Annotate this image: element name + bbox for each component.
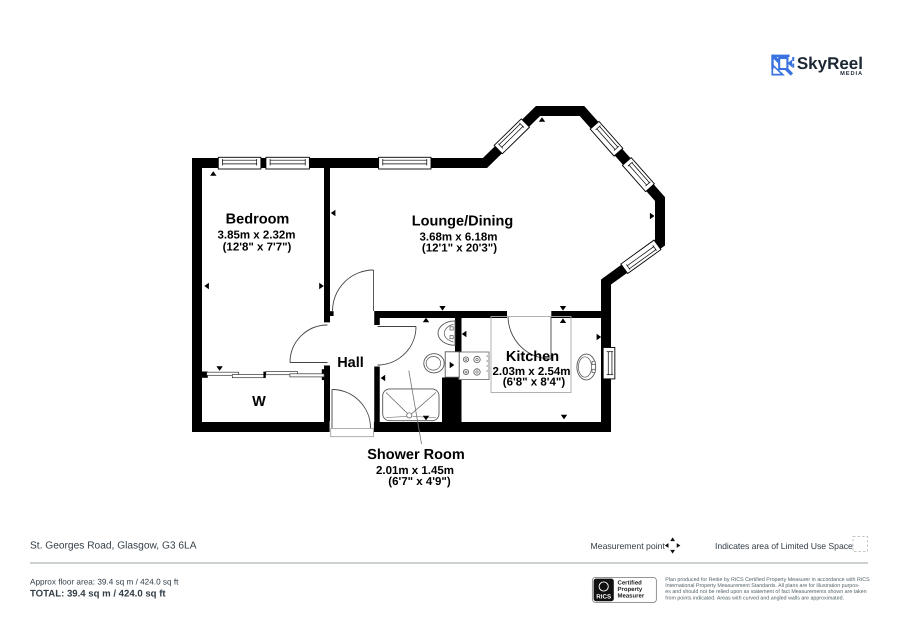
svg-text:(12'1" x 20'3"): (12'1" x 20'3") <box>422 242 497 254</box>
svg-text:Property: Property <box>618 586 643 593</box>
svg-text:MEDIA: MEDIA <box>840 71 863 77</box>
svg-text:Approx floor area: 39.4 sq m /: Approx floor area: 39.4 sq m / 424.0 sq … <box>30 578 179 587</box>
svg-text:Plan produced for Rettie by RI: Plan produced for Rettie by RICS Certifi… <box>665 577 870 583</box>
svg-text:es and should not be relied up: es and should not be relied upon as stat… <box>665 589 866 595</box>
svg-text:RICS: RICS <box>596 594 611 601</box>
svg-text:Measurement point: Measurement point <box>591 541 666 551</box>
svg-text:from points indicated. Areas w: from points indicated. Areas with curved… <box>665 595 844 601</box>
svg-text:3.85m x 2.32m: 3.85m x 2.32m <box>217 229 295 241</box>
svg-text:Lounge/Dining: Lounge/Dining <box>412 214 513 230</box>
svg-text:St. Georges Road, Glasgow, G3: St. Georges Road, Glasgow, G3 6LA <box>30 541 197 552</box>
svg-text:(6'8" x 8'4"): (6'8" x 8'4") <box>503 376 566 388</box>
svg-text:Hall: Hall <box>337 355 364 371</box>
svg-text:(12'8" x 7'7"): (12'8" x 7'7") <box>223 241 292 253</box>
svg-text:Bedroom: Bedroom <box>226 212 290 228</box>
svg-text:W: W <box>252 394 266 410</box>
svg-text:Indicates area of Limited Use: Indicates area of Limited Use Space <box>715 541 853 551</box>
svg-text:Kitchen: Kitchen <box>506 349 559 365</box>
svg-text:Shower Room: Shower Room <box>367 447 464 463</box>
svg-text:Measurer: Measurer <box>618 593 645 600</box>
svg-text:TOTAL: 39.4 sq m / 424.0 sq ft: TOTAL: 39.4 sq m / 424.0 sq ft <box>30 589 166 600</box>
svg-text:International Property Measur: International Property Measurement Stand… <box>665 583 860 589</box>
svg-text:Certified: Certified <box>618 580 643 587</box>
svg-text:(6'7" x 4'9"): (6'7" x 4'9") <box>388 476 451 488</box>
